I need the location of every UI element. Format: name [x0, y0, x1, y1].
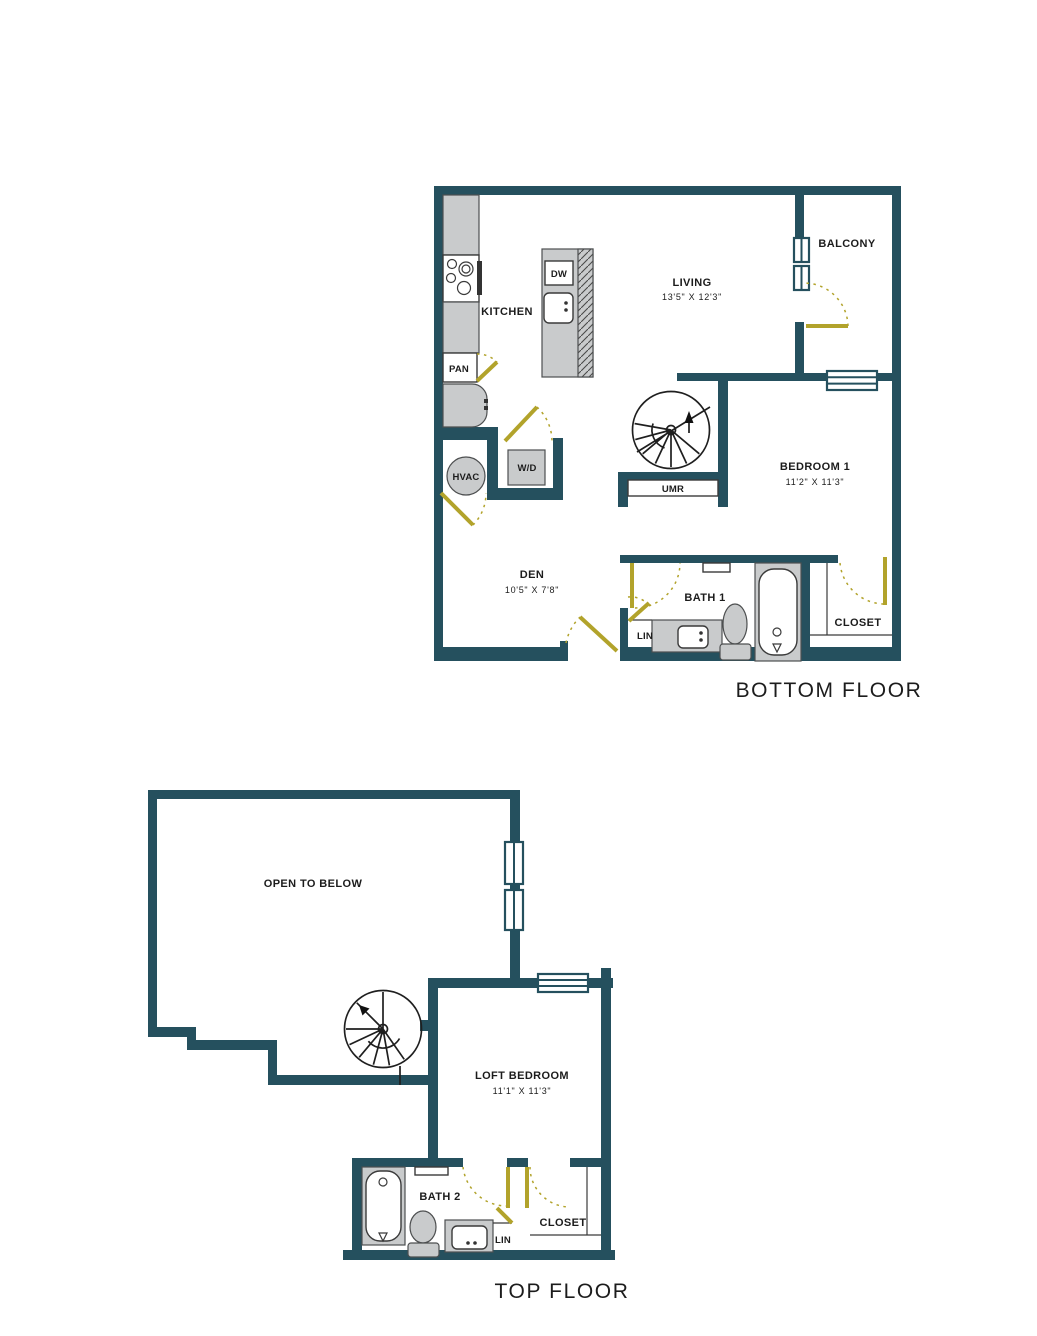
loft-west-wall [428, 978, 438, 1167]
wall [187, 1040, 277, 1050]
balcony-wall [795, 322, 804, 381]
top-floor-title: TOP FLOOR [495, 1280, 630, 1303]
den-door-swing [566, 617, 580, 643]
wd-closet-wall [487, 488, 563, 500]
living-dims: 13'5" X 12'3" [662, 292, 722, 302]
wall [560, 641, 568, 661]
faucet-dot [699, 631, 703, 635]
bath2-wall [352, 1158, 362, 1252]
bedroom1-window [827, 371, 877, 390]
toilet [410, 1211, 436, 1243]
hvac-door-swing [473, 493, 486, 525]
wall [434, 186, 443, 661]
wd-door-swing [537, 407, 552, 441]
stair-up-arrow [685, 411, 694, 423]
bedroom1-dims: 11'2" X 11'3" [786, 477, 845, 487]
pantry-door-swing [477, 354, 497, 362]
floor-plan-page: KITCHEN PAN DW LIVING 13'5" X 12'3" BALC… [0, 0, 1037, 1336]
wall [434, 186, 901, 195]
bath2-wall [507, 1158, 528, 1167]
closet-label: CLOSET [539, 1217, 586, 1229]
island-sink [544, 293, 573, 323]
fridge-handle [484, 399, 488, 403]
faucet-dot [466, 1241, 470, 1245]
den-label: DEN [520, 569, 544, 581]
bath1-sink [678, 626, 708, 648]
closet-door-swing [530, 1167, 570, 1207]
loft-bedroom-label: LOFT BEDROOM [475, 1070, 569, 1082]
open-to-below-label: OPEN TO BELOW [264, 878, 363, 890]
bath2-door-swing [463, 1167, 508, 1206]
bottom-floor-title: BOTTOM FLOOR [736, 679, 923, 702]
wall [892, 186, 901, 661]
bath1-niche [703, 563, 730, 572]
balcony-label: BALCONY [818, 238, 875, 250]
fridge-handle [484, 406, 488, 410]
top-floor-doors [463, 1167, 570, 1223]
faucet-dot [699, 638, 703, 642]
den-dims: 10'5" X 7'8" [505, 585, 559, 595]
bath1-fixtures [628, 563, 892, 661]
open-area-east-wall [510, 798, 520, 978]
wd-label: W/D [517, 463, 536, 474]
den-door-leaf [580, 617, 617, 651]
loft-window [538, 974, 588, 992]
stair-wall [718, 378, 728, 507]
umr-wall [618, 472, 628, 507]
bottom-floor-windows [794, 238, 877, 390]
right-wall [601, 968, 611, 1260]
hvac-label: HVAC [452, 472, 479, 483]
wd-closet-wall [553, 438, 563, 500]
living-label: LIVING [672, 277, 711, 289]
bath2-wall [352, 1158, 463, 1167]
wd-door-leaf [505, 407, 537, 441]
bath1-door-swing [635, 563, 680, 608]
balcony-wall [795, 186, 804, 240]
island-bar-hatch [578, 249, 593, 377]
bath2-sink [452, 1226, 487, 1249]
faucet-dot [564, 308, 568, 312]
faucet-dot [564, 301, 568, 305]
tub-closet-wall [801, 563, 810, 661]
bath1-wall [620, 555, 838, 563]
pantry-label: PAN [449, 364, 469, 375]
lin-label: LIN [495, 1235, 511, 1246]
bath2-niche [415, 1167, 448, 1175]
closet-label: CLOSET [834, 617, 881, 629]
pantry-door-leaf [477, 362, 497, 381]
kitchen-counter [443, 195, 479, 255]
bath1-label: BATH 1 [684, 592, 725, 604]
fridge [443, 384, 487, 427]
bathtub [366, 1171, 401, 1241]
spiral-stair-top [345, 991, 422, 1086]
bedroom1-label: BEDROOM 1 [780, 461, 850, 473]
floor-plan-drawing: KITCHEN PAN DW LIVING 13'5" X 12'3" BALC… [0, 0, 1037, 1336]
wall [148, 790, 157, 1037]
closet-door-swing [840, 563, 885, 604]
kitchen-label: KITCHEN [481, 306, 533, 318]
wall [434, 647, 568, 661]
dishwasher-label: DW [551, 269, 567, 280]
faucet-dot [473, 1241, 477, 1245]
bottom-floor-plan: KITCHEN PAN DW LIVING 13'5" X 12'3" BALC… [434, 186, 922, 702]
loft-bedroom-dims: 11'1" X 11'3" [493, 1086, 552, 1096]
bath2-wall [570, 1158, 611, 1167]
hvac-door-leaf [441, 493, 473, 525]
umr-label: UMR [662, 484, 684, 495]
bath2-label: BATH 2 [419, 1191, 460, 1203]
spiral-stair-bottom [633, 392, 711, 469]
lin-label: LIN [637, 631, 653, 642]
toilet-base [408, 1243, 439, 1257]
balcony-door-swing [804, 283, 848, 326]
stair-treads [635, 407, 710, 467]
lin-door-leaf [497, 1208, 512, 1223]
wall [148, 790, 520, 799]
toilet-base [720, 644, 751, 660]
umr-wall [618, 472, 720, 480]
stove-handle [477, 261, 482, 295]
bathtub [759, 569, 797, 655]
bath1-wall [620, 608, 628, 661]
top-floor-plan: OPEN TO BELOW LOFT BEDROOM 11'1" X 11'3"… [148, 790, 630, 1303]
wall [268, 1075, 437, 1085]
wall [148, 1027, 196, 1037]
kitchen-counter [443, 302, 479, 353]
bath2-fixtures [362, 1167, 601, 1257]
toilet [723, 604, 747, 644]
